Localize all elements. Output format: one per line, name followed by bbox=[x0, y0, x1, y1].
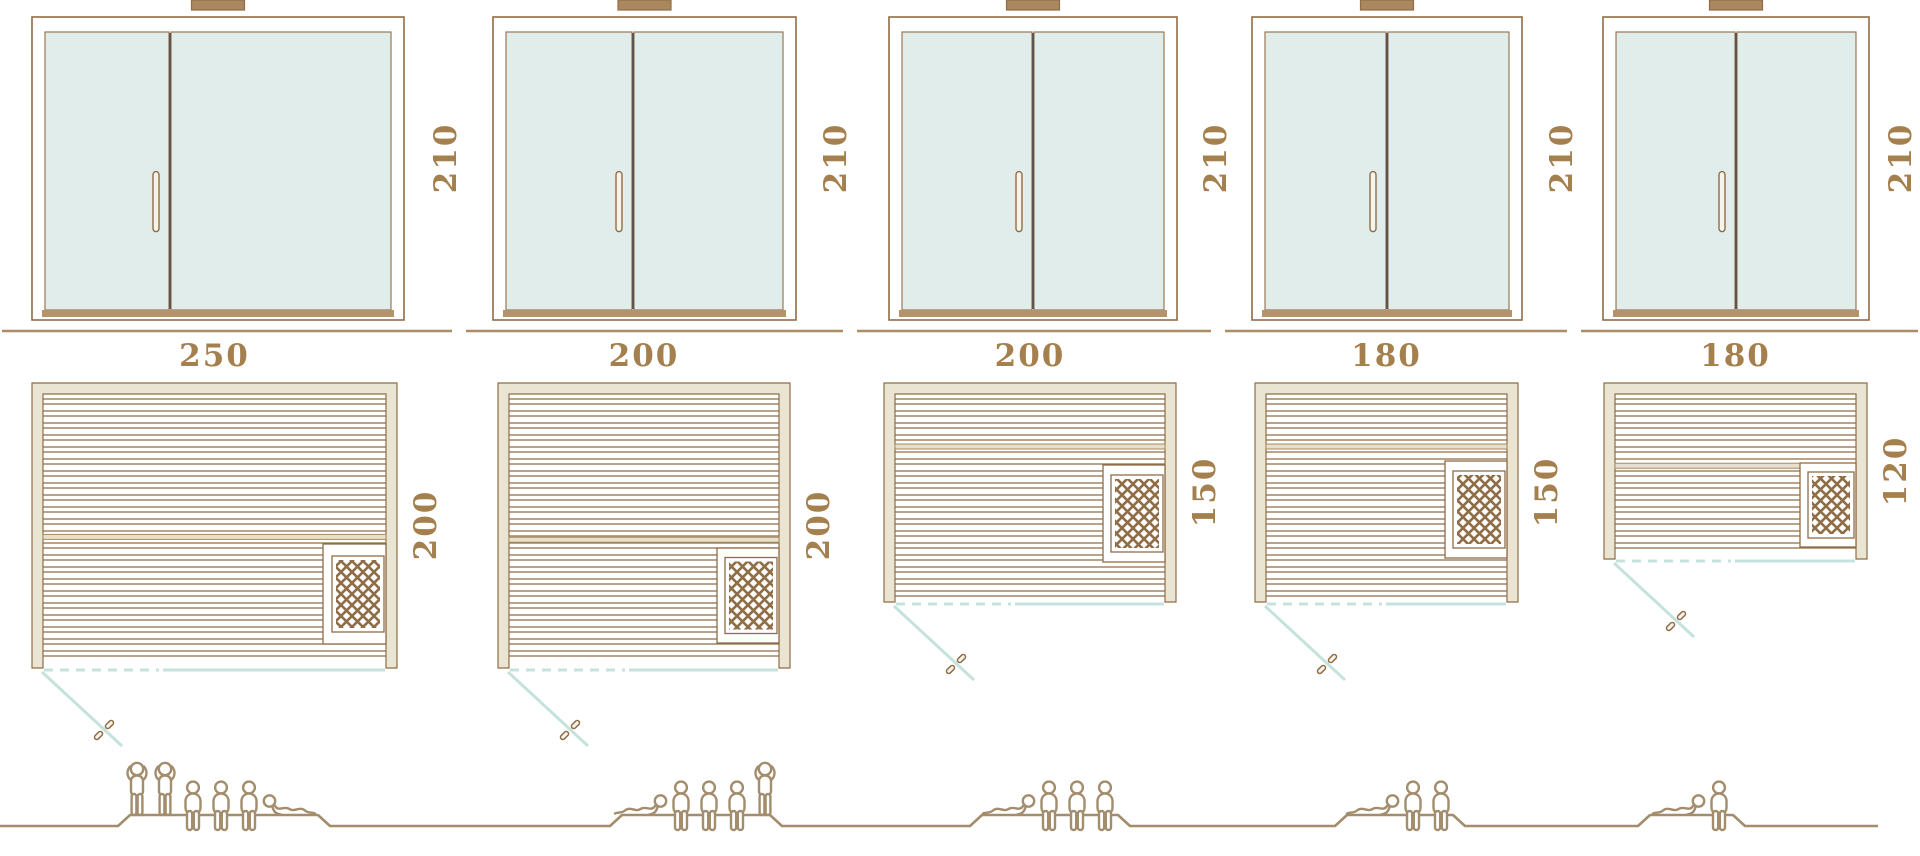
width-label-unit-2: 200 bbox=[498, 339, 790, 373]
sauna-dimension-diagram: 210 210 210 210 210 250 200 200 180 180 … bbox=[0, 0, 1920, 856]
capacity-figures bbox=[0, 763, 1878, 830]
depth-label-unit-4: 150 bbox=[1530, 457, 1564, 528]
depth-label-unit-2: 200 bbox=[802, 490, 836, 561]
width-label-unit-3: 200 bbox=[884, 339, 1176, 373]
depth-label-unit-5: 120 bbox=[1879, 436, 1913, 507]
width-label-unit-1: 250 bbox=[32, 339, 397, 373]
width-label-unit-5: 180 bbox=[1604, 339, 1867, 373]
depth-label-unit-3: 150 bbox=[1188, 457, 1222, 528]
depth-label-unit-1: 200 bbox=[409, 490, 443, 561]
width-label-unit-4: 180 bbox=[1255, 339, 1518, 373]
height-label-unit-5: 210 bbox=[1884, 123, 1918, 194]
height-label-unit-2: 210 bbox=[819, 123, 853, 194]
height-label-unit-1: 210 bbox=[429, 123, 463, 194]
height-label-unit-3: 210 bbox=[1199, 123, 1233, 194]
front-elevations bbox=[2, 0, 1918, 331]
height-label-unit-4: 210 bbox=[1545, 123, 1579, 194]
floor-plans bbox=[32, 383, 1867, 746]
diagram-drawing bbox=[0, 0, 1920, 856]
